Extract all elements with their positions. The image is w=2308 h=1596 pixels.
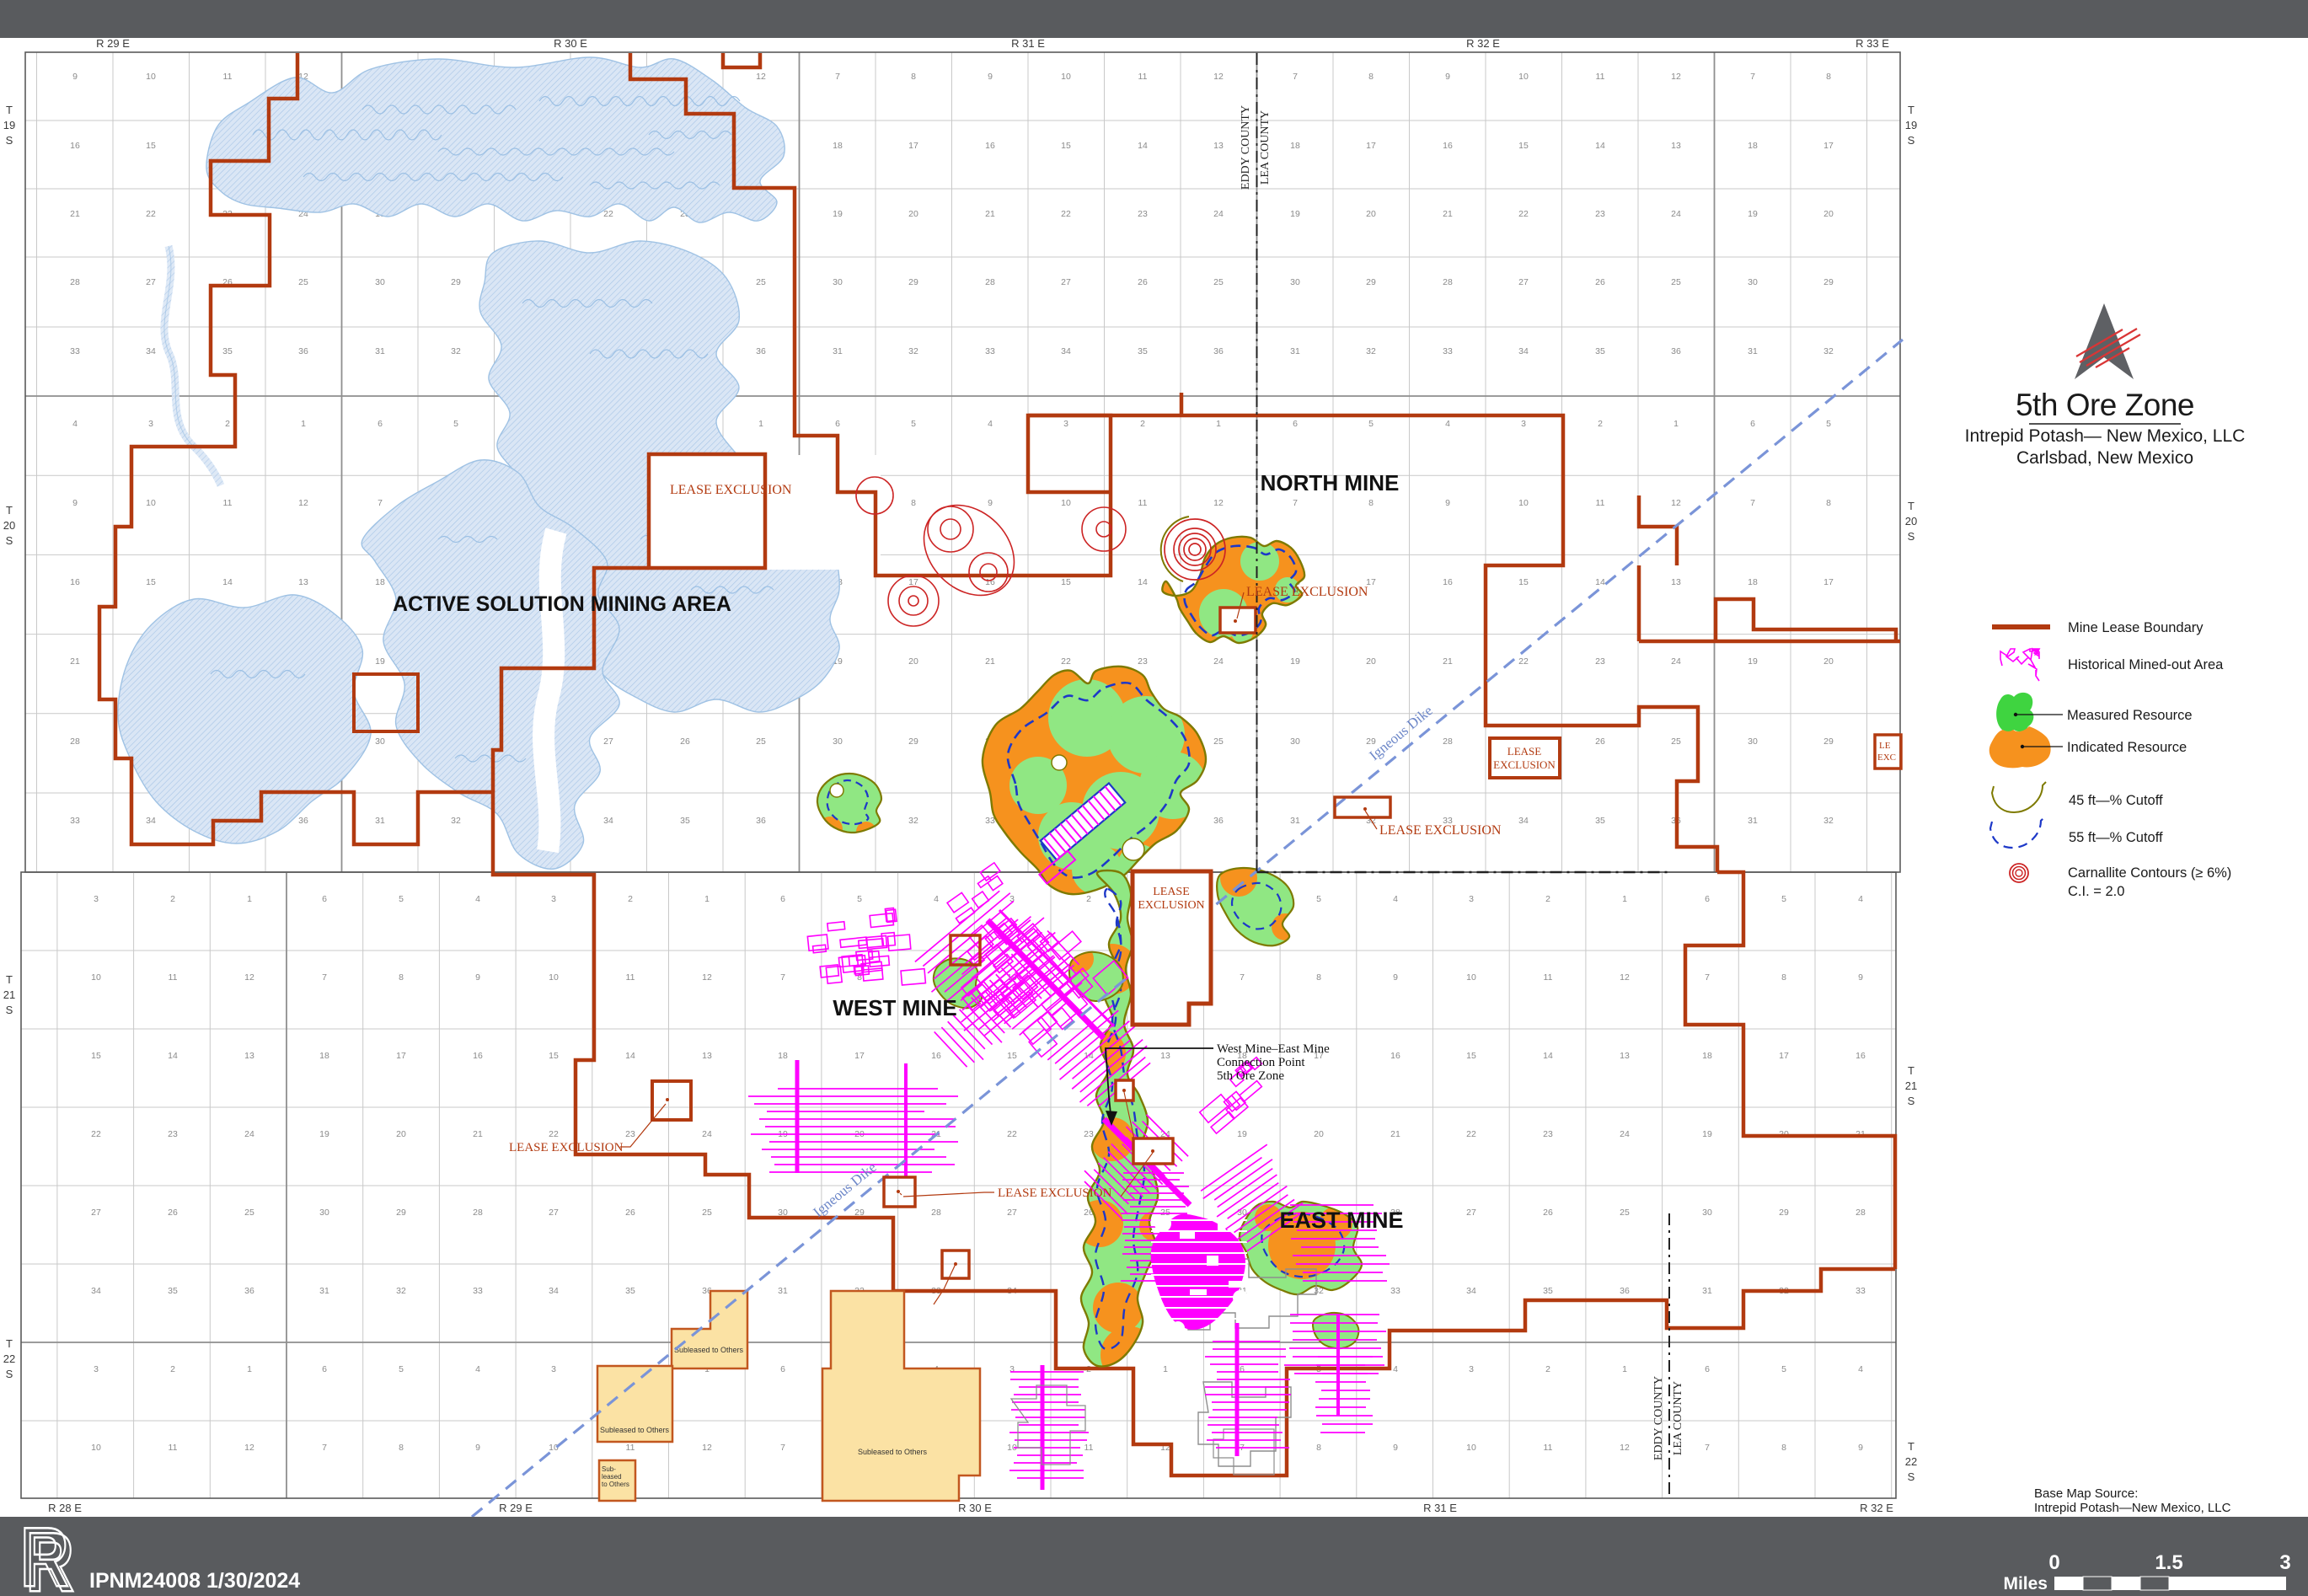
svg-text:C.I. = 2.0: C.I. = 2.0 — [2068, 884, 2124, 899]
svg-text:7: 7 — [322, 1443, 327, 1453]
svg-text:10: 10 — [91, 972, 101, 983]
svg-text:12: 12 — [702, 972, 712, 983]
svg-text:LEASE EXCLUSION: LEASE EXCLUSION — [1246, 585, 1368, 599]
svg-text:31: 31 — [319, 1286, 329, 1296]
svg-text:leased: leased — [602, 1473, 622, 1481]
svg-text:18: 18 — [778, 1051, 788, 1061]
svg-text:R 30 E: R 30 E — [554, 37, 587, 50]
svg-text:2: 2 — [170, 1364, 175, 1374]
svg-text:19: 19 — [3, 119, 15, 131]
svg-text:22: 22 — [1061, 656, 1071, 667]
svg-text:36: 36 — [244, 1286, 254, 1296]
svg-text:19: 19 — [1290, 656, 1300, 667]
svg-text:7: 7 — [835, 72, 840, 82]
svg-text:14: 14 — [222, 577, 233, 587]
svg-text:30: 30 — [1748, 736, 1758, 747]
svg-text:26: 26 — [680, 736, 690, 747]
svg-text:Carnallite Contours (≥ 6%): Carnallite Contours (≥ 6%) — [2068, 865, 2231, 881]
svg-text:23: 23 — [1084, 1129, 1094, 1139]
svg-text:15: 15 — [1061, 141, 1071, 151]
svg-text:22: 22 — [1466, 1129, 1476, 1139]
svg-text:16: 16 — [1443, 577, 1453, 587]
svg-text:34: 34 — [1061, 346, 1071, 356]
svg-text:3: 3 — [1063, 419, 1068, 429]
svg-text:34: 34 — [1466, 1286, 1476, 1296]
svg-text:16: 16 — [473, 1051, 483, 1061]
svg-text:12: 12 — [1213, 72, 1224, 82]
svg-text:1: 1 — [247, 894, 252, 904]
svg-text:25: 25 — [298, 277, 308, 287]
svg-text:2: 2 — [1545, 1364, 1550, 1374]
svg-text:6: 6 — [1705, 1364, 1710, 1374]
svg-text:9: 9 — [1858, 972, 1863, 983]
svg-text:4: 4 — [72, 419, 78, 429]
svg-text:T: T — [1908, 500, 1914, 512]
svg-text:22: 22 — [603, 209, 613, 219]
svg-text:7: 7 — [780, 972, 785, 983]
svg-text:36: 36 — [298, 816, 308, 826]
svg-text:4: 4 — [1445, 419, 1450, 429]
svg-text:11: 11 — [1596, 498, 1605, 508]
svg-text:2: 2 — [1086, 894, 1091, 904]
svg-text:9: 9 — [1445, 72, 1450, 82]
svg-text:9: 9 — [475, 972, 480, 983]
svg-text:2: 2 — [170, 894, 175, 904]
svg-text:6: 6 — [1705, 894, 1710, 904]
svg-text:Intrepid Potash— New Mexico, L: Intrepid Potash— New Mexico, LLC — [1965, 426, 2246, 446]
svg-text:8: 8 — [399, 1443, 404, 1453]
svg-text:5: 5 — [453, 419, 458, 429]
svg-text:19: 19 — [1748, 209, 1758, 219]
svg-text:Subleased to Others: Subleased to Others — [858, 1448, 928, 1456]
svg-text:S: S — [6, 134, 13, 147]
svg-text:17: 17 — [1779, 1051, 1789, 1061]
svg-text:2: 2 — [1140, 419, 1145, 429]
svg-text:2: 2 — [628, 894, 633, 904]
svg-text:8: 8 — [1368, 72, 1374, 82]
svg-text:11: 11 — [1544, 972, 1553, 983]
svg-text:R 31 E: R 31 E — [1423, 1502, 1457, 1514]
svg-text:32: 32 — [451, 816, 461, 826]
svg-text:15: 15 — [1518, 141, 1529, 151]
svg-text:33: 33 — [1856, 1286, 1866, 1296]
svg-text:1: 1 — [247, 1364, 252, 1374]
svg-text:34: 34 — [603, 816, 613, 826]
svg-text:22: 22 — [1518, 656, 1529, 667]
svg-text:24: 24 — [702, 1129, 712, 1139]
svg-text:33: 33 — [985, 346, 995, 356]
svg-text:10: 10 — [1518, 72, 1529, 82]
svg-text:10: 10 — [146, 72, 156, 82]
svg-text:15: 15 — [1007, 1051, 1017, 1061]
svg-text:17: 17 — [908, 577, 918, 587]
svg-text:14: 14 — [1543, 1051, 1553, 1061]
svg-text:9: 9 — [988, 72, 993, 82]
svg-text:5th Ore Zone: 5th Ore Zone — [2016, 388, 2194, 422]
svg-text:1: 1 — [1673, 419, 1679, 429]
svg-text:34: 34 — [1518, 346, 1529, 356]
svg-text:10: 10 — [146, 498, 156, 508]
svg-text:24: 24 — [1213, 656, 1224, 667]
svg-text:12: 12 — [1620, 1443, 1630, 1453]
svg-text:20: 20 — [908, 209, 918, 219]
svg-text:6: 6 — [322, 894, 327, 904]
svg-text:25: 25 — [244, 1208, 254, 1218]
svg-text:9: 9 — [1393, 1443, 1398, 1453]
svg-text:32: 32 — [908, 346, 918, 356]
svg-text:36: 36 — [298, 346, 308, 356]
svg-text:11: 11 — [223, 72, 233, 82]
svg-text:T: T — [6, 1337, 13, 1350]
svg-text:8: 8 — [1826, 498, 1831, 508]
svg-text:13: 13 — [244, 1051, 254, 1061]
svg-text:28: 28 — [931, 1208, 941, 1218]
svg-text:S: S — [1908, 530, 1915, 543]
svg-text:5: 5 — [1781, 1364, 1786, 1374]
svg-text:36: 36 — [1620, 1286, 1630, 1296]
svg-text:33: 33 — [70, 816, 80, 826]
svg-text:LEA COUNTY: LEA COUNTY — [1259, 110, 1272, 185]
svg-text:19: 19 — [1290, 209, 1300, 219]
svg-text:15: 15 — [549, 1051, 559, 1061]
svg-text:8: 8 — [1826, 72, 1831, 82]
svg-text:35: 35 — [625, 1286, 635, 1296]
svg-text:12: 12 — [244, 972, 254, 983]
svg-text:S: S — [1908, 1470, 1915, 1483]
svg-text:11: 11 — [169, 972, 178, 983]
svg-text:28: 28 — [70, 277, 80, 287]
svg-text:3: 3 — [551, 1364, 556, 1374]
svg-text:30: 30 — [833, 277, 843, 287]
svg-text:12: 12 — [702, 1443, 712, 1453]
svg-text:32: 32 — [396, 1286, 406, 1296]
svg-text:30: 30 — [1748, 277, 1758, 287]
svg-text:20: 20 — [1823, 209, 1834, 219]
svg-text:LEASE: LEASE — [1507, 745, 1542, 758]
svg-text:32: 32 — [1823, 816, 1834, 826]
svg-text:31: 31 — [375, 346, 385, 356]
svg-text:33: 33 — [1443, 346, 1453, 356]
svg-text:36: 36 — [756, 346, 766, 356]
svg-text:8: 8 — [911, 72, 916, 82]
svg-text:4: 4 — [1858, 1364, 1863, 1374]
svg-text:24: 24 — [1671, 209, 1681, 219]
svg-text:29: 29 — [1823, 277, 1834, 287]
svg-text:7: 7 — [1240, 972, 1245, 983]
svg-text:7: 7 — [1750, 72, 1755, 82]
svg-text:12: 12 — [1671, 498, 1681, 508]
svg-text:1: 1 — [1163, 1364, 1168, 1374]
svg-text:11: 11 — [1138, 498, 1148, 508]
svg-text:10: 10 — [1061, 498, 1071, 508]
svg-text:R 29 E: R 29 E — [96, 37, 130, 50]
svg-text:9: 9 — [1858, 1443, 1863, 1453]
svg-text:29: 29 — [396, 1208, 406, 1218]
svg-text:11: 11 — [1084, 1443, 1094, 1453]
svg-text:15: 15 — [146, 141, 156, 151]
svg-text:10: 10 — [549, 972, 559, 983]
svg-text:9: 9 — [72, 72, 78, 82]
svg-text:31: 31 — [833, 346, 843, 356]
svg-text:S: S — [1908, 134, 1915, 147]
svg-text:10: 10 — [1466, 972, 1476, 983]
svg-text:11: 11 — [626, 1443, 635, 1453]
svg-text:28: 28 — [1443, 736, 1453, 747]
svg-text:29: 29 — [908, 277, 918, 287]
svg-text:5th Ore Zone: 5th Ore Zone — [1217, 1069, 1284, 1083]
svg-text:31: 31 — [1290, 816, 1300, 826]
svg-text:10: 10 — [91, 1443, 101, 1453]
svg-text:T: T — [1908, 1440, 1914, 1453]
svg-text:7: 7 — [1705, 1443, 1710, 1453]
svg-text:12: 12 — [1671, 72, 1681, 82]
svg-text:5: 5 — [1781, 894, 1786, 904]
svg-text:5: 5 — [399, 1364, 404, 1374]
svg-text:13: 13 — [1620, 1051, 1630, 1061]
svg-text:30: 30 — [375, 736, 385, 747]
svg-text:4: 4 — [1858, 894, 1863, 904]
svg-text:27: 27 — [603, 736, 613, 747]
svg-text:LEASE: LEASE — [1153, 886, 1190, 898]
svg-text:35: 35 — [1543, 1286, 1553, 1296]
svg-text:22: 22 — [1061, 209, 1071, 219]
svg-text:21: 21 — [1390, 1129, 1400, 1139]
svg-text:30: 30 — [319, 1208, 329, 1218]
svg-text:23: 23 — [1543, 1129, 1553, 1139]
svg-text:29: 29 — [1779, 1208, 1789, 1218]
svg-text:1: 1 — [1216, 419, 1221, 429]
svg-text:12: 12 — [756, 72, 766, 82]
svg-text:24: 24 — [1213, 209, 1224, 219]
svg-text:23: 23 — [1138, 656, 1148, 667]
svg-text:8: 8 — [1781, 972, 1786, 983]
svg-text:35: 35 — [1138, 346, 1148, 356]
svg-text:17: 17 — [854, 1051, 865, 1061]
svg-text:12: 12 — [1620, 972, 1630, 983]
svg-text:ACTIVE SOLUTION MINING AREA: ACTIVE SOLUTION MINING AREA — [393, 592, 731, 616]
svg-text:34: 34 — [146, 816, 156, 826]
svg-text:30: 30 — [375, 277, 385, 287]
svg-text:NORTH MINE: NORTH MINE — [1261, 470, 1400, 495]
svg-text:36: 36 — [1671, 346, 1681, 356]
svg-text:13: 13 — [1671, 141, 1681, 151]
svg-text:26: 26 — [1595, 736, 1605, 747]
svg-text:5: 5 — [1368, 419, 1374, 429]
svg-text:35: 35 — [680, 816, 690, 826]
svg-text:Carlsbad, New Mexico: Carlsbad, New Mexico — [2016, 448, 2193, 468]
svg-text:1: 1 — [758, 419, 763, 429]
svg-text:11: 11 — [223, 498, 233, 508]
svg-text:14: 14 — [1595, 577, 1605, 587]
svg-text:21: 21 — [985, 209, 995, 219]
svg-text:4: 4 — [988, 419, 993, 429]
svg-text:1.5: 1.5 — [2155, 1551, 2182, 1574]
svg-text:18: 18 — [833, 141, 843, 151]
svg-text:19: 19 — [375, 656, 385, 667]
svg-text:6: 6 — [780, 1364, 785, 1374]
svg-text:13: 13 — [1160, 1051, 1170, 1061]
svg-text:27: 27 — [1061, 277, 1071, 287]
svg-text:LEA COUNTY: LEA COUNTY — [1672, 1381, 1684, 1455]
svg-text:13: 13 — [1213, 141, 1224, 151]
svg-text:34: 34 — [91, 1286, 101, 1296]
svg-text:3: 3 — [94, 1364, 99, 1374]
svg-text:21: 21 — [473, 1129, 483, 1139]
svg-text:T: T — [6, 104, 13, 116]
svg-text:7: 7 — [1293, 498, 1298, 508]
svg-text:9: 9 — [72, 498, 78, 508]
svg-text:36: 36 — [1213, 816, 1224, 826]
svg-text:5: 5 — [857, 894, 862, 904]
svg-text:15: 15 — [146, 577, 156, 587]
svg-text:R: R — [25, 1516, 74, 1596]
svg-text:Measured Resource: Measured Resource — [2067, 708, 2193, 723]
svg-text:3: 3 — [1469, 1364, 1474, 1374]
svg-text:19: 19 — [1702, 1129, 1712, 1139]
svg-text:23: 23 — [1595, 656, 1605, 667]
svg-text:2: 2 — [1598, 419, 1603, 429]
svg-text:24: 24 — [1620, 1129, 1630, 1139]
svg-text:18: 18 — [319, 1051, 329, 1061]
svg-text:7: 7 — [780, 1443, 785, 1453]
svg-text:Sub-: Sub- — [602, 1465, 616, 1473]
svg-text:32: 32 — [1823, 346, 1834, 356]
svg-text:9: 9 — [475, 1443, 480, 1453]
svg-text:0: 0 — [2048, 1551, 2059, 1574]
svg-text:28: 28 — [473, 1208, 483, 1218]
svg-text:28: 28 — [1856, 1208, 1866, 1218]
svg-text:7: 7 — [1293, 72, 1298, 82]
svg-text:21: 21 — [70, 656, 80, 667]
svg-text:12: 12 — [298, 498, 308, 508]
svg-text:25: 25 — [756, 277, 766, 287]
svg-text:28: 28 — [985, 277, 995, 287]
svg-text:16: 16 — [931, 1051, 941, 1061]
svg-text:Mine Lease Boundary: Mine Lease Boundary — [2068, 620, 2204, 635]
svg-text:31: 31 — [1748, 816, 1758, 826]
svg-text:27: 27 — [549, 1208, 559, 1218]
svg-text:EXC: EXC — [1877, 752, 1896, 763]
svg-text:21: 21 — [1443, 656, 1453, 667]
svg-text:10: 10 — [1518, 498, 1529, 508]
svg-text:19: 19 — [1905, 119, 1917, 131]
svg-text:28: 28 — [1443, 277, 1453, 287]
svg-text:11: 11 — [626, 972, 635, 983]
svg-text:34: 34 — [549, 1286, 559, 1296]
svg-text:26: 26 — [1543, 1208, 1553, 1218]
svg-text:3: 3 — [2279, 1551, 2290, 1574]
svg-text:14: 14 — [1138, 577, 1148, 587]
svg-text:19: 19 — [833, 209, 843, 219]
svg-text:21: 21 — [1443, 209, 1453, 219]
svg-text:Historical Mined-out Area: Historical Mined-out Area — [2068, 657, 2224, 672]
svg-text:23: 23 — [168, 1129, 178, 1139]
svg-text:25: 25 — [756, 736, 766, 747]
svg-text:17: 17 — [1823, 141, 1834, 151]
svg-text:29: 29 — [1823, 736, 1834, 747]
svg-text:1: 1 — [301, 419, 306, 429]
svg-text:EXCLUSION: EXCLUSION — [1493, 758, 1556, 771]
svg-text:5: 5 — [911, 419, 916, 429]
svg-text:15: 15 — [1466, 1051, 1476, 1061]
svg-text:11: 11 — [1596, 72, 1605, 82]
svg-text:LEASE EXCLUSION: LEASE EXCLUSION — [1379, 823, 1502, 838]
svg-text:Intrepid Potash—New Mexico, LL: Intrepid Potash—New Mexico, LLC — [2034, 1501, 2231, 1515]
svg-text:19: 19 — [1748, 656, 1758, 667]
svg-text:LEASE EXCLUSION: LEASE EXCLUSION — [670, 483, 792, 497]
svg-text:Indicated Resource: Indicated Resource — [2067, 740, 2187, 755]
svg-text:25: 25 — [1213, 277, 1224, 287]
svg-text:25: 25 — [1671, 736, 1681, 747]
svg-text:15: 15 — [91, 1051, 101, 1061]
svg-text:20: 20 — [1366, 656, 1376, 667]
svg-text:23: 23 — [625, 1129, 635, 1139]
svg-text:Miles: Miles — [2003, 1574, 2048, 1593]
svg-text:26: 26 — [168, 1208, 178, 1218]
svg-text:34: 34 — [146, 346, 156, 356]
svg-text:15: 15 — [1061, 577, 1071, 587]
svg-text:18: 18 — [1702, 1051, 1712, 1061]
svg-text:T: T — [6, 973, 13, 986]
svg-text:14: 14 — [1138, 141, 1148, 151]
svg-text:1: 1 — [704, 894, 710, 904]
svg-text:6: 6 — [322, 1364, 327, 1374]
svg-text:3: 3 — [148, 419, 153, 429]
svg-text:S: S — [1908, 1095, 1915, 1107]
svg-text:8: 8 — [1368, 498, 1374, 508]
svg-text:25: 25 — [1213, 736, 1224, 747]
svg-text:30: 30 — [833, 736, 843, 747]
svg-text:Subleased to Others: Subleased to Others — [674, 1346, 744, 1354]
svg-text:7: 7 — [378, 498, 383, 508]
svg-text:18: 18 — [1290, 141, 1300, 151]
svg-text:35: 35 — [168, 1286, 178, 1296]
svg-text:4: 4 — [475, 894, 480, 904]
svg-text:18: 18 — [1748, 141, 1758, 151]
svg-text:3: 3 — [551, 894, 556, 904]
svg-text:18: 18 — [375, 577, 385, 587]
svg-text:31: 31 — [375, 816, 385, 826]
svg-text:33: 33 — [70, 346, 80, 356]
svg-text:32: 32 — [1366, 346, 1376, 356]
svg-text:22: 22 — [91, 1129, 101, 1139]
svg-text:R 33 E: R 33 E — [1856, 37, 1889, 50]
svg-text:29: 29 — [908, 736, 918, 747]
svg-text:4: 4 — [1393, 894, 1398, 904]
svg-text:S: S — [6, 1004, 13, 1016]
svg-text:27: 27 — [91, 1208, 101, 1218]
svg-text:10: 10 — [1466, 1443, 1476, 1453]
svg-text:R 31 E: R 31 E — [1011, 37, 1045, 50]
svg-text:to Others: to Others — [602, 1481, 629, 1488]
svg-text:27: 27 — [146, 277, 156, 287]
svg-text:45 ft—% Cutoff: 45 ft—% Cutoff — [2069, 793, 2163, 808]
svg-text:22: 22 — [1518, 209, 1529, 219]
svg-text:27: 27 — [1518, 277, 1529, 287]
svg-text:17: 17 — [1366, 141, 1376, 151]
svg-text:8: 8 — [1316, 1443, 1321, 1453]
svg-text:S: S — [6, 534, 13, 547]
svg-text:T: T — [6, 504, 13, 517]
svg-text:2: 2 — [1545, 894, 1550, 904]
svg-text:19: 19 — [1237, 1129, 1247, 1139]
svg-text:20: 20 — [1905, 515, 1917, 528]
svg-text:16: 16 — [70, 577, 80, 587]
svg-text:14: 14 — [625, 1051, 635, 1061]
svg-text:36: 36 — [1213, 346, 1224, 356]
svg-text:30: 30 — [1702, 1208, 1712, 1218]
svg-text:16: 16 — [70, 141, 80, 151]
